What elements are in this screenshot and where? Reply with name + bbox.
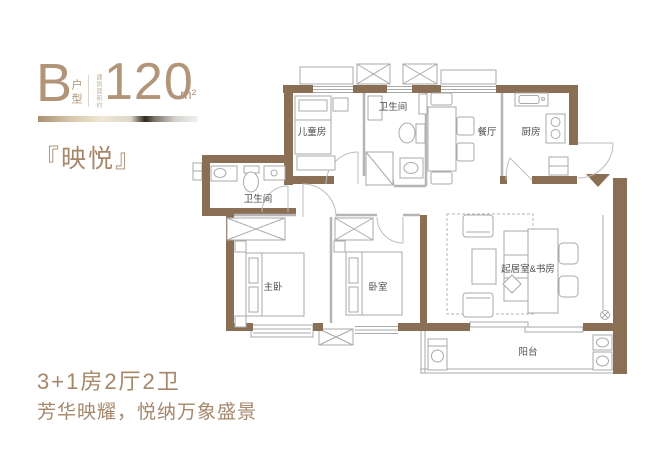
nightstand [235,241,246,252]
tagline: 芳华映耀，悦纳万象盛景 [37,397,257,424]
master-door-arc [303,184,336,217]
nightstand [235,316,246,327]
nightstand [334,241,345,252]
bedroom-door-arc [377,217,403,243]
room-label-balcony: 阳台 [518,346,537,358]
chair [431,93,452,105]
washing-machine-icon [428,339,447,370]
basin [264,166,285,180]
pillow [349,258,358,283]
pillow [349,287,358,312]
coffee-table [472,249,496,284]
layout-summary: 3+1房2厅2卫 [37,364,181,396]
pillow [249,258,258,283]
desk-chair [559,276,578,297]
sink-icon [404,163,418,174]
bathroom-second-fixtures [211,166,285,192]
floorplan-drawing: 儿童房 卫生间 餐厅 厨房 卫生间 主卧 卧室 起居室&书房 阳台 [190,55,640,380]
master-bedroom-furniture [227,218,304,327]
gradient-ribbon [38,116,198,122]
unit-type-label: 户型 [68,79,84,107]
room-label-bathroom-main: 卫生间 [379,101,408,113]
armchair [463,293,493,317]
toilet-icon [399,123,415,143]
unit-letter: B [36,56,72,110]
room-label-living-study: 起居室&书房 [501,263,555,275]
chair [457,143,474,161]
floorplan-page: { "header": { "unit_letter": "B", "unit_… [0,0,660,459]
pillow [249,287,258,312]
kitchen-door-arc [506,158,532,180]
niche [419,94,427,114]
dining-furniture [428,93,474,184]
desk-chair [559,243,578,264]
room-label-kitchen: 厨房 [521,126,540,138]
armchair [463,215,493,237]
sink-icon [214,169,226,178]
bedroom-furniture [334,218,402,315]
chair [457,117,474,135]
dining-table [428,107,456,171]
toilet-icon [244,172,259,192]
pillow [299,100,327,111]
dresser [297,156,335,170]
area-note: 建筑面积约 [94,74,103,109]
room-label-master: 主卧 [263,281,283,293]
chair [431,172,452,184]
room-label-children: 儿童房 [298,126,327,138]
nightstand [333,98,348,111]
room-label-bedroom: 卧室 [368,281,387,293]
room-label-dining: 餐厅 [477,126,497,138]
project-name: 『映悦』 [34,139,142,175]
room-label-bathroom-second: 卫生间 [244,193,273,205]
toilet-tank [416,124,425,143]
title-divider [88,75,89,107]
entrance-door-arc [578,143,613,178]
